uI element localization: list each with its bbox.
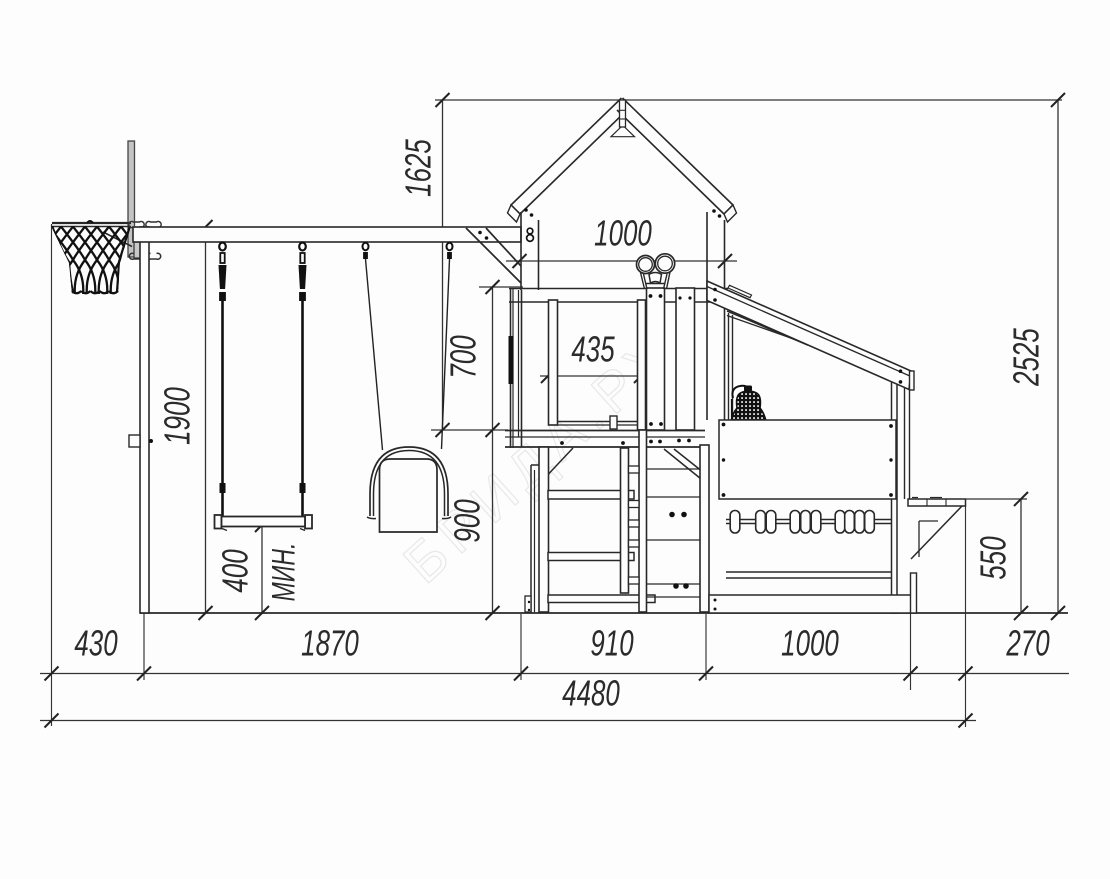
svg-text:1000: 1000 [781, 623, 839, 663]
svg-text:4480: 4480 [562, 673, 620, 713]
svg-text:700: 700 [443, 335, 483, 379]
svg-text:270: 270 [1006, 623, 1051, 663]
svg-text:910: 910 [590, 623, 634, 663]
svg-text:430: 430 [74, 623, 118, 663]
svg-text:МИН.: МИН. [266, 543, 302, 602]
svg-text:1900: 1900 [157, 387, 197, 445]
svg-text:2525: 2525 [1006, 328, 1046, 387]
svg-text:435: 435 [571, 329, 615, 369]
svg-text:400: 400 [215, 549, 255, 593]
svg-text:1625: 1625 [398, 139, 438, 197]
svg-text:1000: 1000 [594, 213, 652, 253]
svg-text:1870: 1870 [301, 623, 359, 663]
svg-text:550: 550 [973, 536, 1013, 580]
svg-text:900: 900 [447, 499, 487, 543]
